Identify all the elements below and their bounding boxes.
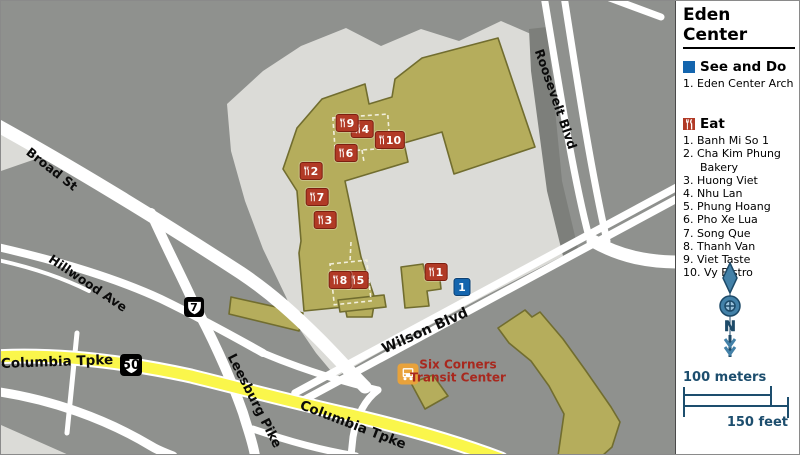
legend-panel: Eden Center See and Do 1. Eden Center Ar… <box>675 1 799 455</box>
map-canvas: Broad StHillwood AveRoosevelt BlvdWilson… <box>1 1 677 455</box>
eat-icon <box>683 118 695 130</box>
eat-item-4: 4. Nhu Lan <box>683 187 795 200</box>
eat-item-2: 2. Cha Kim Phung Bakery <box>683 147 795 173</box>
eat-item-1: 1. Banh Mi So 1 <box>683 134 795 147</box>
eat-item-3: 3. Huong Viet <box>683 174 795 187</box>
map-base-graphics <box>1 1 677 455</box>
eat-item-7: 7. Song Que <box>683 227 795 240</box>
see-and-do-item-1: 1. Eden Center Arch <box>683 77 795 90</box>
scale-bar: 100 meters 150 feet <box>679 367 797 429</box>
eat-item-6: 6. Pho Xe Lua <box>683 213 795 226</box>
eat-heading: Eat <box>683 116 795 132</box>
eat-heading-label: Eat <box>700 116 725 132</box>
eat-list: 1. Banh Mi So 12. Cha Kim Phung Bakery3.… <box>683 134 795 279</box>
fork-knife-icon <box>685 119 694 130</box>
see-and-do-heading: See and Do <box>683 59 795 75</box>
see-and-do-icon <box>683 61 695 73</box>
svg-text:100 meters: 100 meters <box>683 370 766 385</box>
map-title: Eden Center <box>683 5 795 49</box>
eat-item-5: 5. Phung Hoang <box>683 200 795 213</box>
see-and-do-list: 1. Eden Center Arch <box>683 77 795 90</box>
compass-rose-icon: N <box>708 261 752 361</box>
svg-text:N: N <box>724 319 736 335</box>
map-screenshot: Broad StHillwood AveRoosevelt BlvdWilson… <box>0 0 800 455</box>
see-and-do-heading-label: See and Do <box>700 59 786 75</box>
highlight-connector-85 <box>350 242 351 262</box>
eat-item-8: 8. Thanh Van <box>683 240 795 253</box>
svg-text:150 feet: 150 feet <box>727 415 788 429</box>
